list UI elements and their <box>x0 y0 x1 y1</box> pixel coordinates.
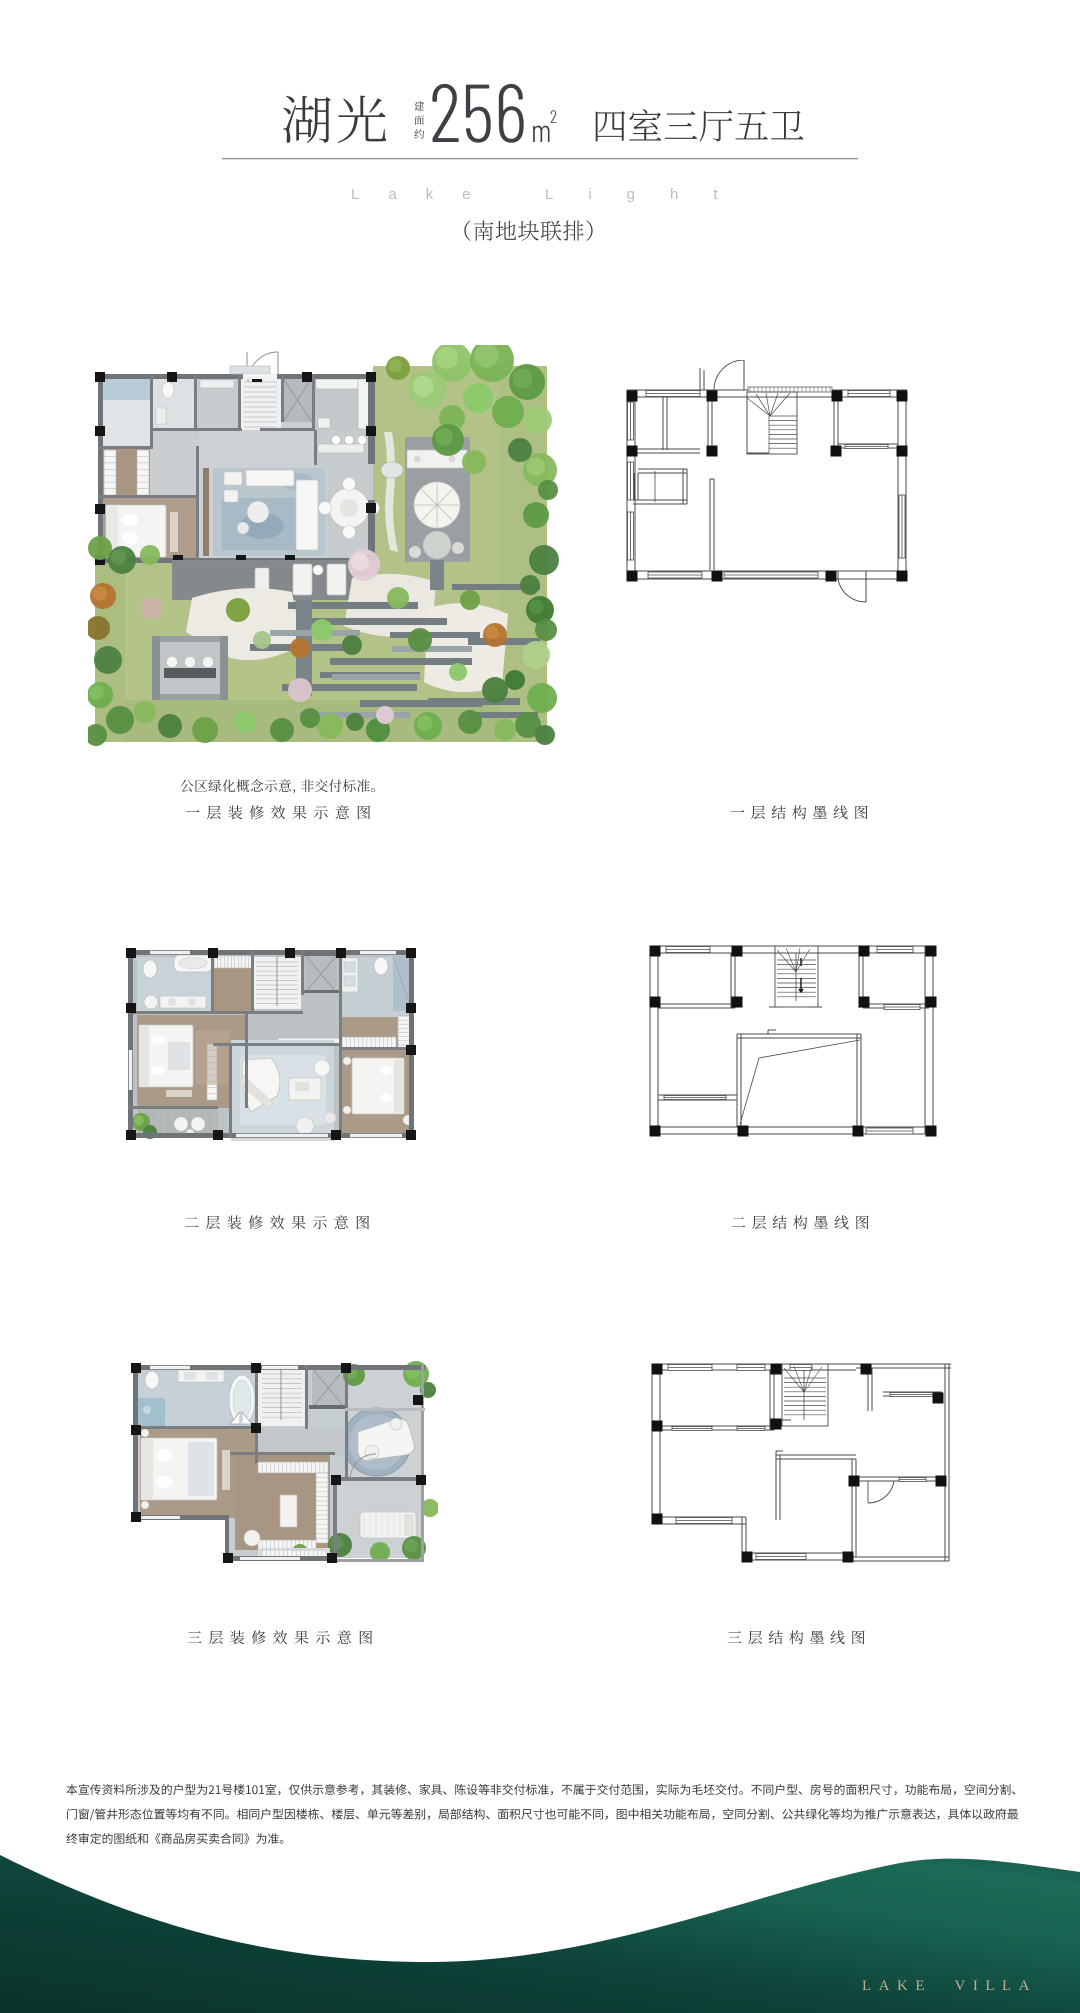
svg-text:LAKE VILLA: LAKE VILLA <box>862 1978 1037 1994</box>
